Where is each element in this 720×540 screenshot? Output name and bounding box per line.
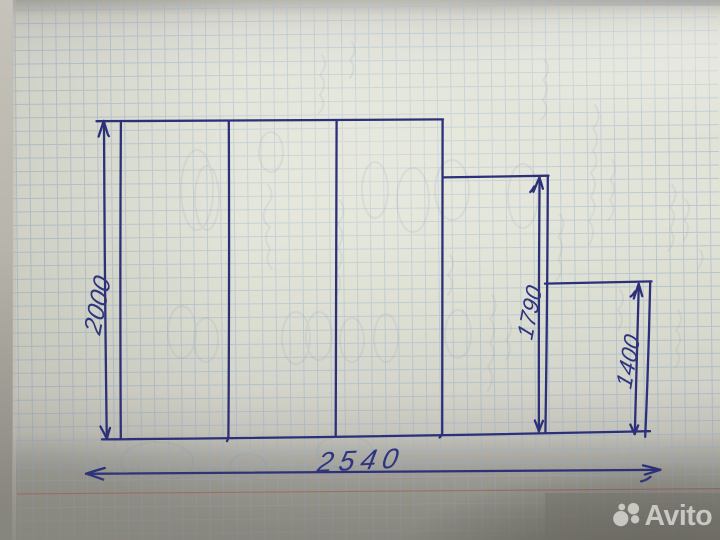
svg-text:Avito: Avito xyxy=(645,500,713,532)
